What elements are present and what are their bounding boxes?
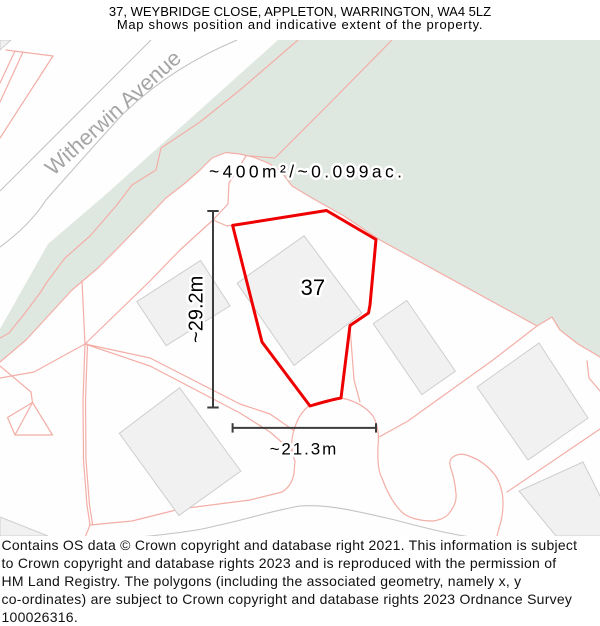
svg-text:~29.2m: ~29.2m [185, 276, 207, 343]
svg-text:~400m²/~0.099ac.: ~400m²/~0.099ac. [209, 161, 405, 181]
svg-text:37: 37 [301, 275, 325, 300]
svg-text:~21.3m: ~21.3m [270, 440, 339, 459]
